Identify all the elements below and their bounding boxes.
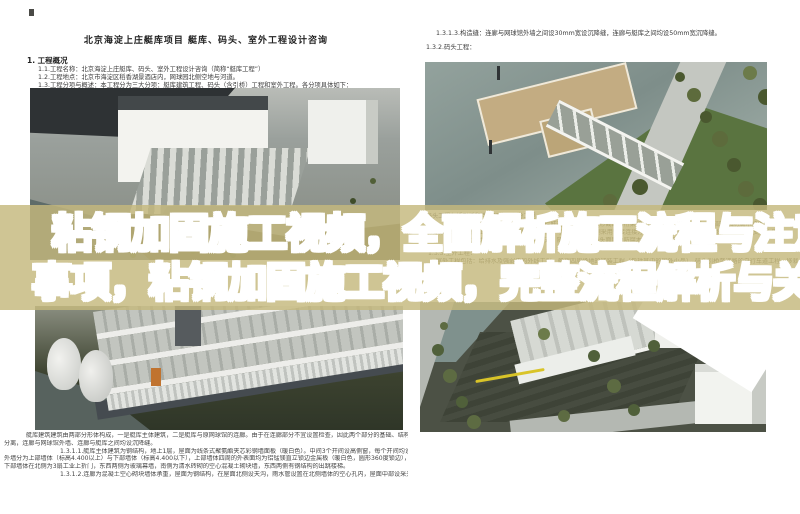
overlay-title-line2: 事项，粘钢加固施工视频，完整流程解析与关 xyxy=(22,259,800,308)
tree-dots xyxy=(440,322,448,330)
orange-door xyxy=(151,368,161,386)
pier-bridge-rendering xyxy=(425,62,767,210)
thumbnail-canvas: 北京海淀上庄艇库项目 艇库、码头、室外工程设计咨询 1. 工程概况 1.1.工程… xyxy=(0,0,800,514)
storage-tank xyxy=(47,338,81,390)
overlay-band: 粘钢加固施工视频，全面解析施工流程与注意 事项，粘钢加固施工视频，完整流程解析与… xyxy=(0,205,800,310)
page-corner-mark xyxy=(29,9,34,16)
boathouse-description-paragraph: 艇库建筑建筑由两部分形体构成，一是艇库主体建筑，二是艇库与原网球馆的连廊。由于在… xyxy=(4,432,408,479)
intro-line-2: 1.2.工程地点：北京市海淀区稻香湖景酒店内，网球园北侧空地与河道。 xyxy=(38,74,239,82)
storage-tank xyxy=(79,350,113,402)
dock-post xyxy=(497,66,500,80)
pier-section-heading: 1.3.2.码头工程： xyxy=(426,44,476,52)
dock-post xyxy=(489,140,492,154)
site-overview-rendering xyxy=(420,302,766,432)
paragraph-line: 1.3.1.1.艇库主体建筑为钢结构，地上1层，屋面为线条式聚氨酯夹芯彩钢墙面板… xyxy=(4,448,408,456)
white-box-building xyxy=(308,100,378,164)
tree-dots xyxy=(675,72,685,82)
overlay-title-line1: 粘钢加固施工视频，全面解析施工流程与注意 xyxy=(42,210,800,259)
intro-line-1: 1.1.工程名称：北京海淀上庄艇库、码头、室外工程设计咨询（简称“艇库工程”） xyxy=(38,66,264,74)
paragraph-line: 分离，连廊与网球馆外墙、连廊与艇库之间均设沉降缝。 xyxy=(4,440,408,448)
joint-seam-line: 1.3.1.3.构造缝：连廊与网球馆外墙之间设30mm宽设沉降缝，连廊与艇库之间… xyxy=(436,30,721,38)
section-heading: 1. 工程概况 xyxy=(27,55,68,66)
paragraph-line: 艇库建筑建筑由两部分形体构成，一是艇库主体建筑，二是艇库与原网球馆的连廊。由于在… xyxy=(4,432,408,440)
chimney xyxy=(175,306,201,346)
paragraph-line: 下部墙体在北侧为3扇工业上折门，东西两侧为玻璃幕墙，南侧为清水砖砌的空心混凝土砌… xyxy=(4,463,408,471)
paragraph-line: 1.3.1.2.连廊为混凝土空心砌块墙体承重，屋面为钢结构，在屋面北侧设天沟，雨… xyxy=(4,471,408,479)
boathouse-rendering xyxy=(35,306,403,430)
paragraph-line: 外墙分为上部墙体（标高4.400以上）与下部墙体（标高4.400以下），上部墙体… xyxy=(4,455,408,463)
doc-title: 北京海淀上庄艇库项目 艇库、码头、室外工程设计咨询 xyxy=(0,33,412,46)
